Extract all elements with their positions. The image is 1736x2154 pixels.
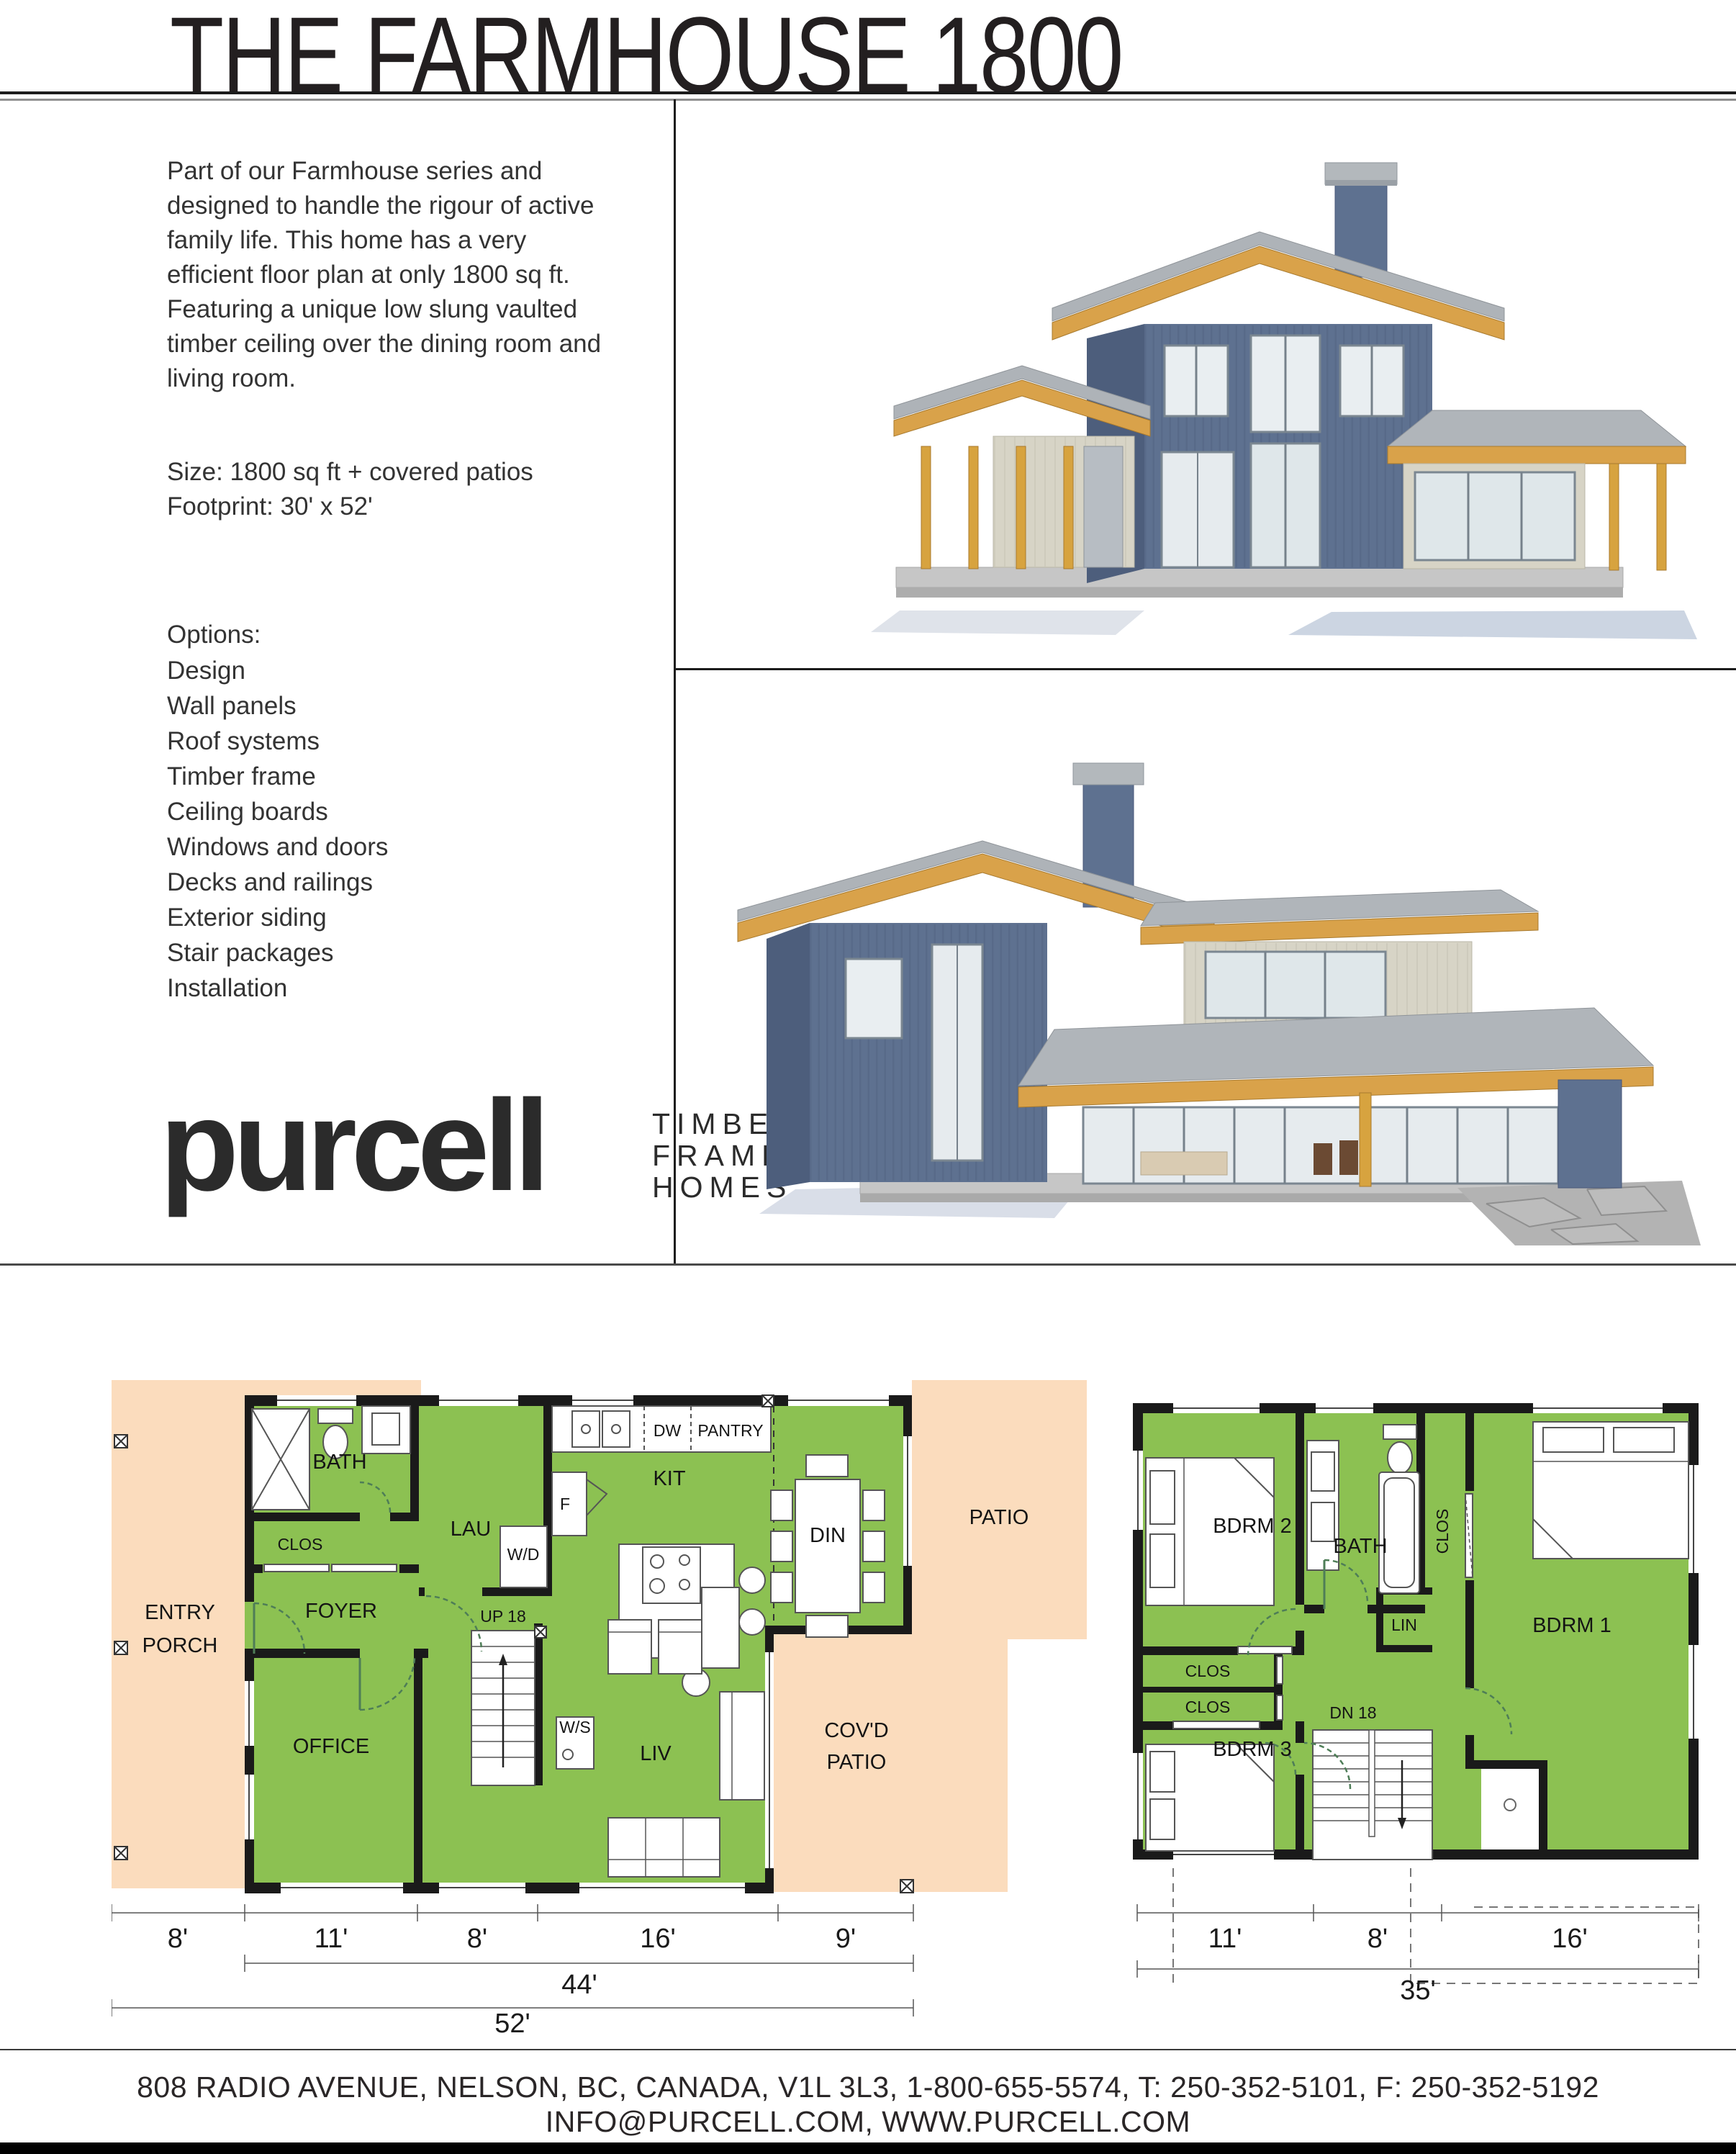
entry-porch [894, 366, 1150, 569]
left-upper-volume [767, 923, 1047, 1189]
option-item: Windows and doors [167, 833, 388, 862]
bedroom1-label: BDRM 1 [1532, 1614, 1611, 1637]
bedroom3-label: BDRM 3 [1213, 1738, 1292, 1761]
shaft-alcove [1481, 1769, 1539, 1849]
dim-label: 8' [168, 1924, 188, 1954]
panel-vertical-divider [674, 99, 676, 1264]
bath-label: BATH [1333, 1535, 1387, 1558]
upper-floor-plan: BDRM 2 BATH CLOS LIN BDRM 1 CLOS CLOS DN… [1130, 1371, 1713, 2034]
covered-patio-label: COV'D [824, 1719, 888, 1742]
option-item: Timber frame [167, 762, 316, 791]
upper-shingle-volume [1141, 890, 1538, 1027]
washer-dryer-label: W/D [507, 1545, 540, 1564]
foyer-label: FOYER [305, 1600, 377, 1623]
dim-label: 8' [1367, 1924, 1388, 1954]
linen-label: LIN [1391, 1615, 1417, 1634]
closet-label: CLOS [278, 1535, 323, 1554]
option-item: Ceiling boards [167, 798, 328, 826]
footer-rule [0, 2049, 1736, 2050]
stairs-down-label: DN 18 [1329, 1703, 1376, 1722]
closet-label: CLOS [1185, 1698, 1231, 1716]
option-item: Design [167, 657, 245, 685]
dining-label: DIN [810, 1524, 846, 1547]
option-item: Decks and railings [167, 868, 373, 897]
pantry-label: PANTRY [697, 1421, 763, 1440]
main-floor-plan: ENTRY PORCH BATH CLOS LAU W/D FOYER OFFI… [112, 1371, 1090, 2034]
footer-contact-line: INFO@PURCELL.COM, WWW.PURCELL.COM [0, 2105, 1736, 2139]
dim-label: 16' [1552, 1924, 1588, 1954]
stairs-up [471, 1631, 535, 1785]
ground-shadow [871, 610, 1697, 639]
footprint-line: Footprint: 30' x 52' [167, 490, 373, 524]
dishwasher-label: DW [654, 1421, 682, 1440]
stairs-up-label: UP 18 [480, 1607, 526, 1626]
option-item: Wall panels [167, 692, 297, 721]
dim-label: 11' [1208, 1924, 1242, 1954]
kitchen-label: KIT [653, 1467, 685, 1490]
covered-patio-label: PATIO [827, 1751, 887, 1774]
option-item: Stair packages [167, 939, 334, 968]
patio-label: PATIO [969, 1506, 1029, 1529]
flagstone-path [1457, 1181, 1701, 1245]
laundry-label: LAU [451, 1518, 491, 1541]
option-item: Exterior siding [167, 903, 327, 932]
stairs-down [1313, 1730, 1432, 1860]
office-label: OFFICE [293, 1735, 369, 1758]
dim-label: 11' [315, 1924, 348, 1954]
concrete-slab [896, 567, 1623, 598]
dim-label: 8' [467, 1924, 487, 1954]
main-gable-roof [1052, 232, 1504, 340]
intro-paragraph: Part of our Farmhouse series and designe… [167, 154, 616, 396]
size-line: Size: 1800 sq ft + covered patios [167, 455, 533, 490]
footer-address-line: 808 RADIO AVENUE, NELSON, BC, CANADA, V1… [0, 2070, 1736, 2104]
living-label: LIV [640, 1742, 672, 1765]
dimension-lines [112, 1904, 913, 2016]
closet-label: CLOS [1433, 1509, 1452, 1554]
fridge-label: F [560, 1495, 570, 1513]
footer-black-bar [0, 2142, 1736, 2154]
dim-total: 52' [494, 2009, 530, 2034]
dim-subtotal: 44' [561, 1970, 597, 2000]
bedroom1-bed [1533, 1422, 1688, 1559]
title-rule-dark [0, 91, 1736, 94]
house-rendering-patio-view [680, 685, 1702, 1254]
closet-label: CLOS [1185, 1662, 1231, 1680]
right-wing [1388, 410, 1686, 570]
options-heading: Options: [167, 621, 261, 649]
purcell-logo-wordmark: purcell [160, 1071, 544, 1220]
house-rendering-front-view [684, 108, 1699, 662]
renderings-divider [674, 668, 1736, 670]
roof-outline-dashed [1173, 1868, 1699, 1983]
entry-porch-label: ENTRY [145, 1601, 215, 1624]
entry-porch-label: PORCH [143, 1634, 218, 1657]
dim-label: 9' [836, 1924, 856, 1954]
wood-stove-label: W/S [559, 1718, 590, 1736]
option-item: Roof systems [167, 727, 320, 756]
covered-patio-area [774, 1634, 1008, 1892]
bath-label: BATH [312, 1451, 366, 1474]
title-rule-gray [0, 99, 1736, 101]
dim-total: 35' [1400, 1975, 1436, 2006]
dim-label: 16' [640, 1924, 676, 1954]
option-item: Installation [167, 974, 287, 1003]
bedroom2-label: BDRM 2 [1213, 1515, 1292, 1538]
panel-bottom-rule [0, 1263, 1736, 1266]
